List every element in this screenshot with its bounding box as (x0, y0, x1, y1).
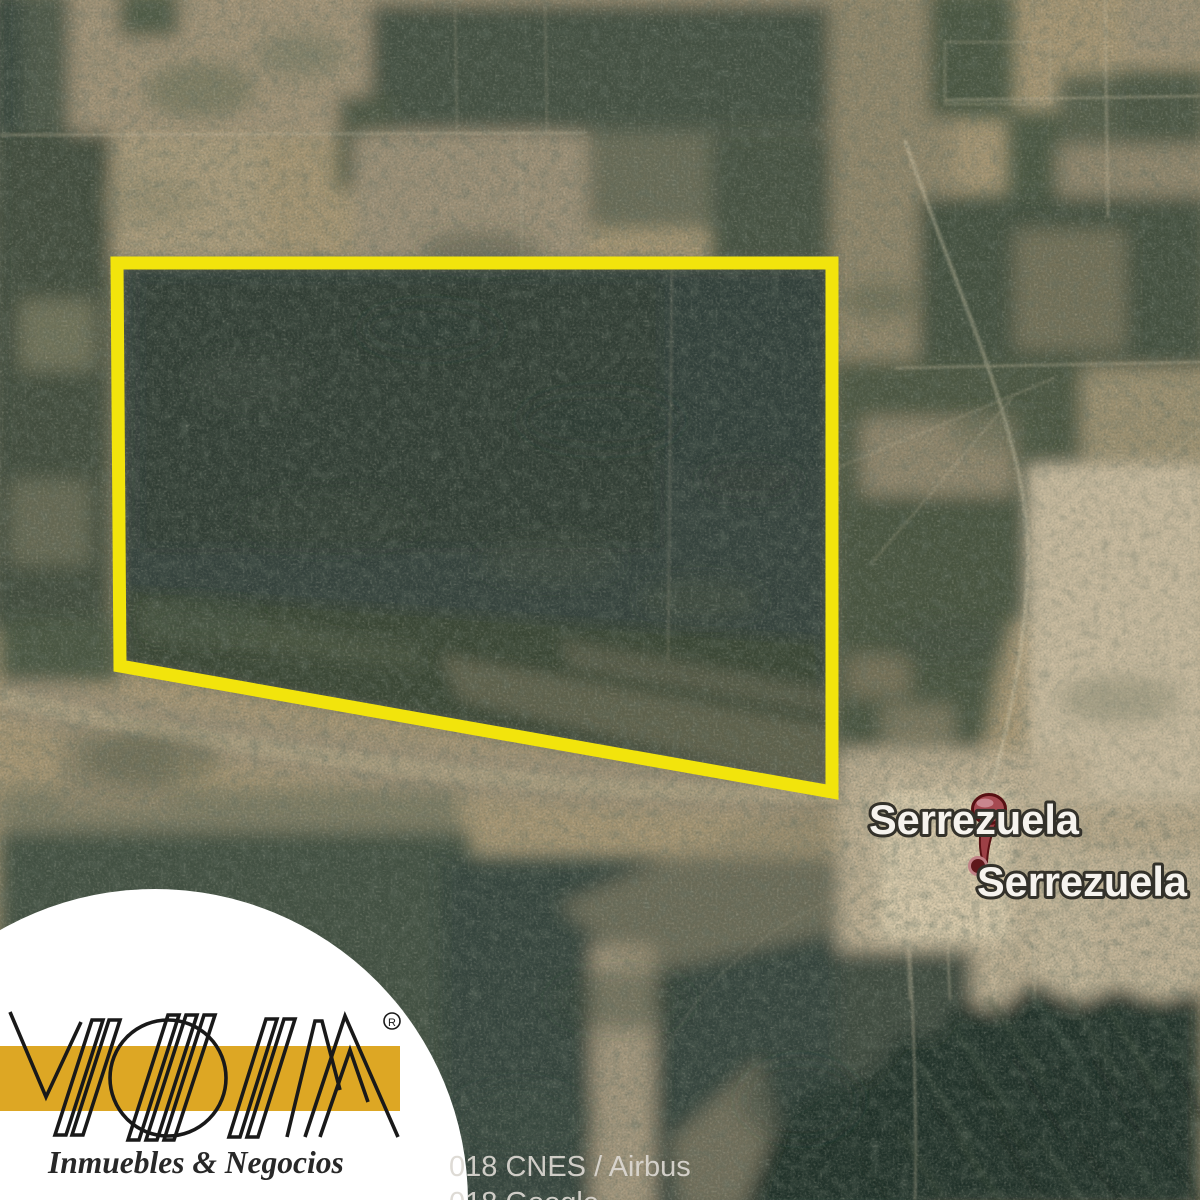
svg-text:Serrezuela: Serrezuela (869, 796, 1080, 843)
svg-text:R: R (388, 1017, 396, 1029)
svg-text:Inmuebles & Negocios: Inmuebles & Negocios (47, 1145, 344, 1180)
svg-text:018 CNES / Airbus: 018 CNES / Airbus (449, 1151, 691, 1183)
svg-text:Serrezuela: Serrezuela (977, 858, 1188, 905)
svg-text:018 Google: 018 Google (449, 1187, 599, 1200)
